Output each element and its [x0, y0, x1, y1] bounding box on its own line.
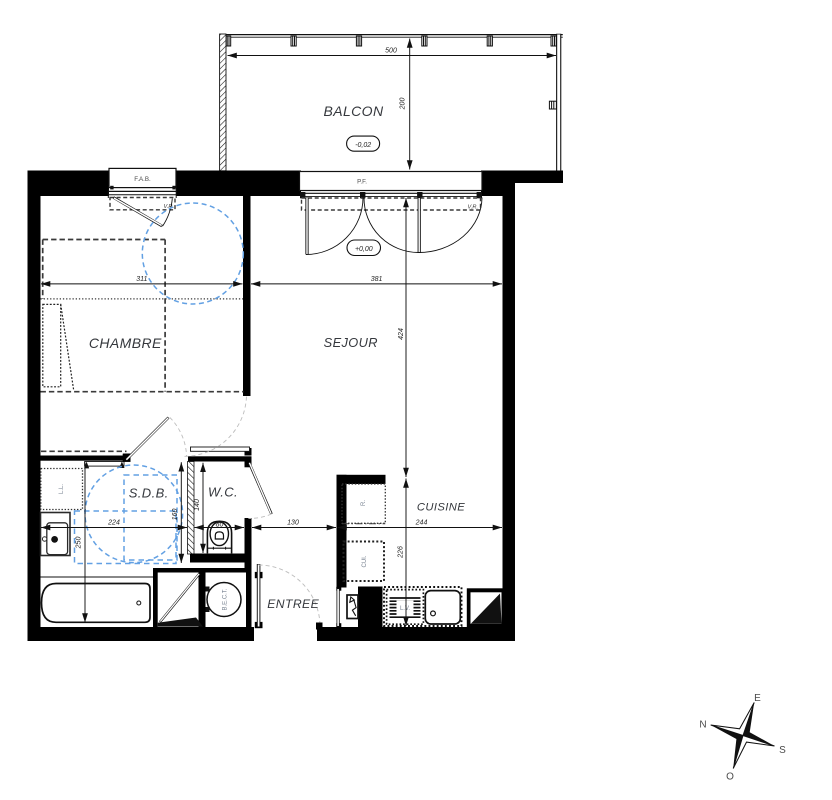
svg-text:CUI.: CUI. — [362, 555, 368, 567]
svg-text:N: N — [699, 720, 706, 731]
svg-text:W.C.: W.C. — [208, 485, 238, 500]
svg-text:R.: R. — [361, 500, 367, 506]
svg-text:130: 130 — [287, 520, 299, 527]
svg-text:L.L.: L.L. — [59, 484, 65, 494]
svg-text:BALCON: BALCON — [324, 103, 384, 119]
svg-text:250: 250 — [75, 537, 82, 550]
svg-text:244: 244 — [415, 520, 428, 527]
svg-text:S: S — [779, 745, 786, 756]
svg-text:B.E.C.T.: B.E.C.T. — [223, 588, 229, 610]
svg-text:224: 224 — [107, 520, 120, 527]
svg-text:CHAMBRE: CHAMBRE — [89, 335, 162, 351]
svg-text:424: 424 — [398, 328, 405, 340]
svg-text:O: O — [726, 772, 734, 783]
svg-text:140: 140 — [194, 499, 201, 511]
svg-text:200: 200 — [400, 98, 407, 111]
svg-text:500: 500 — [385, 48, 397, 55]
svg-text:SEJOUR: SEJOUR — [324, 335, 378, 350]
svg-text:E: E — [754, 693, 761, 704]
svg-text:L.V.: L.V. — [400, 606, 410, 612]
svg-text:226: 226 — [398, 546, 405, 559]
svg-text:S.D.B.: S.D.B. — [129, 486, 169, 501]
svg-text:311: 311 — [136, 276, 147, 283]
svg-text:V.R.: V.R. — [468, 205, 478, 211]
svg-text:P.F.: P.F. — [357, 179, 367, 186]
svg-text:-0,02: -0,02 — [355, 142, 371, 149]
svg-text:160: 160 — [172, 509, 179, 521]
svg-text:+0,00: +0,00 — [355, 246, 373, 253]
svg-text:381: 381 — [371, 276, 383, 283]
svg-text:80: 80 — [216, 522, 224, 529]
svg-text:CUISINE: CUISINE — [417, 502, 465, 514]
svg-text:ENTREE: ENTREE — [267, 597, 319, 611]
svg-text:F.A.B.: F.A.B. — [134, 176, 151, 183]
